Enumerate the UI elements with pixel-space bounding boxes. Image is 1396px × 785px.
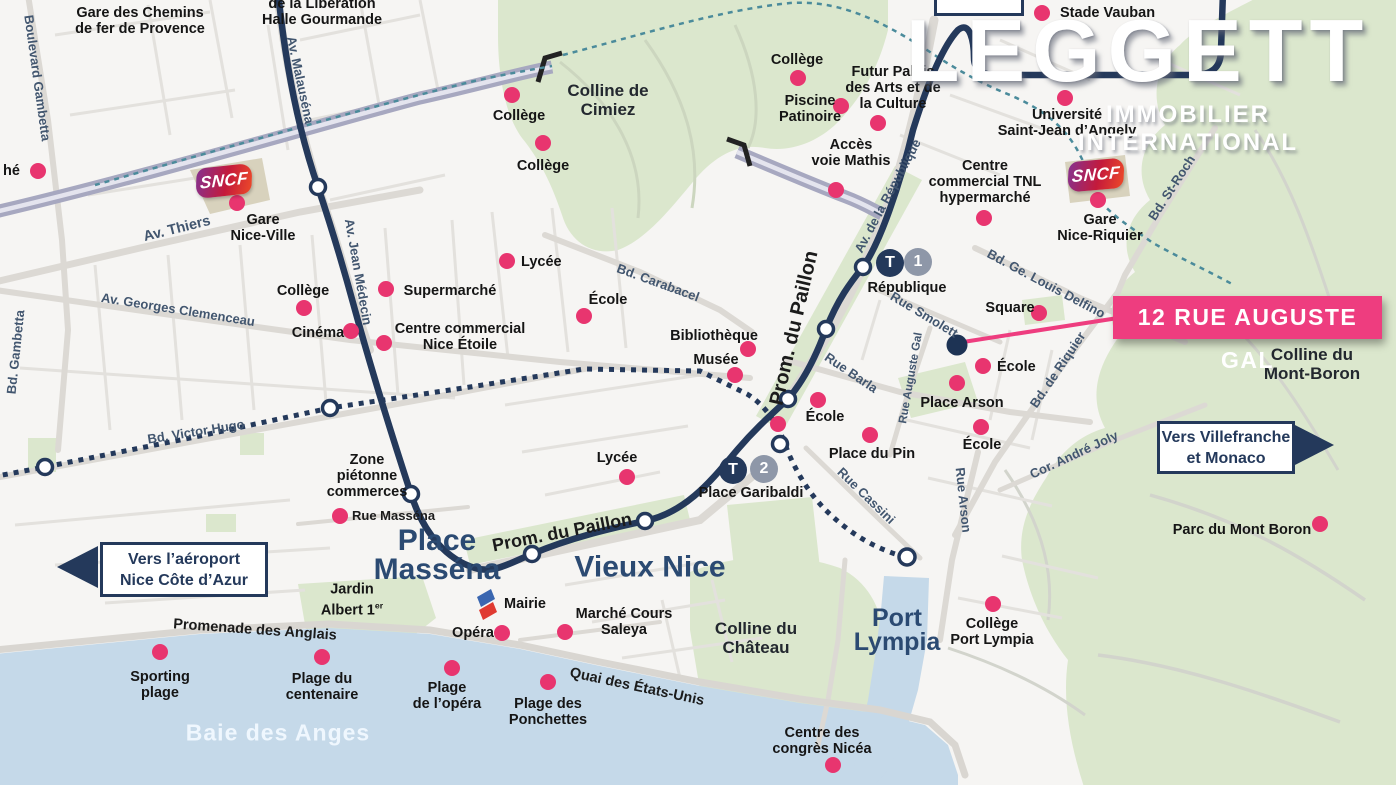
airport-arrow-icon: [57, 546, 98, 588]
poi-label-ecole: École: [963, 437, 1002, 453]
sign-airport-line2: Nice Côte d’Azur: [103, 570, 265, 591]
poi-label-gare: GareNice-Ville: [230, 212, 295, 244]
poi-label-plage-des: Plage desPonchettes: [509, 696, 587, 728]
street-label-bd-de-riquier: Bd. de Riquier: [1028, 330, 1089, 411]
poi-dot-plage-des: [540, 674, 556, 690]
district-label-port: PortLympia: [854, 606, 941, 654]
water-label-baie-des-anges: Baie des Anges: [186, 720, 370, 747]
poi-label-ecole: École: [806, 409, 845, 425]
tram-station-label-republique: République: [868, 280, 947, 296]
poi-dot-supermarche: [378, 281, 394, 297]
poi-label-college: Collège: [771, 52, 823, 68]
street-label-av-georges-clemenceau: Av. Georges Clemenceau: [100, 291, 256, 329]
poi-label-he: hé: [3, 163, 20, 179]
street-label-cor-andre-joly: Cor. André Joly: [1028, 428, 1121, 481]
poi-dot-gare: [229, 195, 245, 211]
poi-label-gare: GareNice-Riquier: [1057, 212, 1142, 244]
poi-label-marche-cours: Marché CoursSaleya: [576, 606, 673, 638]
district-label-place: PlaceMasséna: [374, 526, 501, 584]
poi-dot-marche-cours: [557, 624, 573, 640]
street-label-prom-du-paillon: Prom. du Paillon: [491, 512, 633, 553]
tram-line-number-badge-1: 1: [904, 248, 932, 276]
street-label-boulevard-gambetta: Boulevard Gambetta: [21, 14, 53, 142]
poi-dot-centre: [976, 210, 992, 226]
poi-dot-unlabeled-1: [770, 416, 786, 432]
poi-label-rue-massena: Rue Masséna: [352, 509, 435, 523]
poi-label-bibliotheque: Bibliothèque: [670, 328, 758, 344]
poi-label-lycee: Lycée: [597, 450, 638, 466]
poi-label-supermarche: Supermarché: [404, 283, 497, 299]
street-label-av-malausena: Av. Malauséna: [284, 35, 316, 125]
poi-dot-musee: [727, 367, 743, 383]
tram-station-label-place-garibaldi: Place Garibaldi: [699, 485, 804, 501]
poi-label-place-arson: Place Arson: [920, 395, 1003, 411]
property-callout: 12 RUE AUGUSTE GAL: [1113, 296, 1382, 339]
poi-dot-futur-palais: [870, 115, 886, 131]
poi-label-opera: Opéra: [452, 625, 494, 641]
poi-dot-acces: [828, 182, 844, 198]
poi-label-jardin: JardinAlbert 1er: [321, 582, 383, 619]
poi-label-de-la-liberation: de la LibérationHalle Gourmande: [262, 0, 382, 28]
poi-label-zone: Zonepiétonnecommerces: [327, 452, 408, 500]
poi-label-cinema: Cinéma: [292, 325, 344, 341]
poi-dot-college: [504, 87, 520, 103]
tram-line-number-badge-2: 2: [750, 455, 778, 483]
poi-dot-lycee: [619, 469, 635, 485]
street-label-rue-arson: Rue Arson: [953, 467, 974, 533]
street-label-promenade-des-anglais: Promenade des Anglais: [173, 617, 337, 642]
poi-dot-sporting: [152, 644, 168, 660]
poi-label-lycee: Lycée: [521, 254, 562, 270]
poi-dot-plage: [444, 660, 460, 676]
poi-label-plage-du: Plage ducentenaire: [286, 671, 359, 703]
poi-dot-place-du-pin: [862, 427, 878, 443]
poi-dot-college: [985, 596, 1001, 612]
poi-label-acces: Accèsvoie Mathis: [812, 137, 891, 169]
street-label-bd-gambetta: Bd. Gambetta: [5, 309, 28, 395]
sign-villefranche-line2: et Monaco: [1160, 448, 1292, 469]
sign-airport-line1: Vers l’aéroport: [103, 549, 265, 570]
sign-villefranche: Vers Villefranche et Monaco: [1157, 421, 1295, 474]
poi-label-place-du-pin: Place du Pin: [829, 446, 915, 462]
poi-dot-gare: [1090, 192, 1106, 208]
villefranche-arrow-icon: [1293, 424, 1334, 466]
street-label-rue-cassini: Rue Cassini: [834, 465, 897, 527]
poi-dot-lycee: [499, 253, 515, 269]
sncf-logo-text: SNCF: [200, 168, 249, 192]
poi-label-centre-commercial: Centre commercialNice Étoile: [395, 321, 526, 353]
poi-dot-cinema: [343, 323, 359, 339]
poi-label-square: Square: [985, 300, 1034, 316]
sncf-logo-text: SNCF: [1071, 163, 1120, 186]
poi-label-ecole: École: [589, 292, 628, 308]
poi-dot-opera: [494, 625, 510, 641]
hill-label-colline-du: Colline duMont-Boron: [1264, 345, 1360, 383]
poi-dot-college: [296, 300, 312, 316]
poi-dot-place-arson: [949, 375, 965, 391]
street-label-av-thiers: Av. Thiers: [142, 214, 212, 244]
district-label-vieux-nice: Vieux Nice: [574, 553, 725, 582]
poi-label-gare-des-chemins: Gare des Cheminsde fer de Provence: [75, 5, 205, 37]
hill-label-colline-de: Colline deCimiez: [567, 81, 648, 119]
poi-label-centre-des: Centre descongrès Nicéa: [772, 725, 871, 757]
poi-label-plage: Plagede l’opéra: [413, 680, 482, 712]
poi-label-parc-du-mont-boron: Parc du Mont Boron: [1173, 522, 1312, 538]
poi-label-centre: Centrecommercial TNLhypermarché: [929, 158, 1042, 206]
poi-dot-college: [790, 70, 806, 86]
poi-dot-rue-massena: [332, 508, 348, 524]
poi-dot-ecole: [975, 358, 991, 374]
poi-label-college: Collège: [493, 108, 545, 124]
poi-dot-ecole: [810, 392, 826, 408]
street-label-quai-des-etats-unis: Quai des États-Unis: [569, 666, 706, 708]
sncf-logo-nice-riquier: SNCF: [1067, 157, 1124, 192]
tram-line-letter-badge-2: T: [719, 456, 747, 484]
street-label-av-jean-medecin: Av. Jean Médecin: [342, 218, 374, 326]
poi-dot-ecole: [973, 419, 989, 435]
street-label-bd-victor-hugo: Bd. Victor Hugo: [147, 417, 246, 446]
poi-dot-plage-du: [314, 649, 330, 665]
poi-dot-college: [535, 135, 551, 151]
poi-label-college: Collège: [517, 158, 569, 174]
poi-dot-centre-commercial: [376, 335, 392, 351]
street-label-prom-du-paillon: Prom. du Paillon: [769, 250, 818, 407]
poi-label-college: Collège: [277, 283, 329, 299]
street-label-bd-carabacel: Bd. Carabacel: [615, 262, 701, 305]
tram-line-letter-badge-1: T: [876, 249, 904, 277]
poi-label-piscine: PiscinePatinoire: [779, 93, 841, 125]
poi-label-college: CollègePort Lympia: [950, 616, 1033, 648]
nice-city-map: Gare des Cheminsde fer de Provencede la …: [0, 0, 1396, 785]
hill-label-colline-du: Colline duChâteau: [715, 619, 797, 657]
poi-label-sporting: Sportingplage: [130, 669, 190, 701]
leggett-tagline: IMMOBILIER INTERNATIONAL: [992, 101, 1384, 157]
sncf-logo-nice-ville: SNCF: [196, 163, 253, 199]
poi-dot-ecole: [576, 308, 592, 324]
sign-villefranche-line1: Vers Villefranche: [1160, 427, 1292, 448]
poi-label-ecole: École: [997, 359, 1036, 375]
poi-dot-centre-des: [825, 757, 841, 773]
poi-label-musee: Musée: [693, 352, 738, 368]
street-label-rue-barla: Rue Barla: [822, 350, 880, 396]
leggett-logo: LEGGETT: [884, 8, 1392, 94]
sign-airport: Vers l’aéroport Nice Côte d’Azur: [100, 542, 268, 597]
poi-dot-he: [30, 163, 46, 179]
street-label-bd-st-roch: Bd. St-Roch: [1146, 153, 1198, 223]
poi-dot-parc-du-mont-boron: [1312, 516, 1328, 532]
poi-label-mairie: Mairie: [504, 596, 546, 612]
